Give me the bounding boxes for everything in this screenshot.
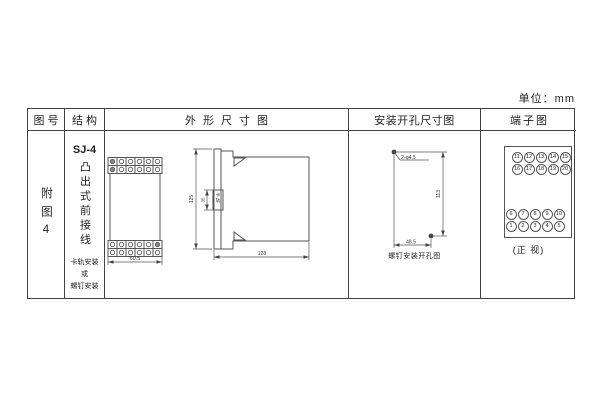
mounting-cell: 2-φ4.5 113 48.5 螺钉安装开孔图 [349,131,481,298]
terminal-row: 1112131415 [512,152,571,163]
terminal-2: 2 [518,221,529,232]
terminal-10: 10 [554,209,565,220]
terminal-14: 14 [548,152,559,163]
terminal-row: 1617181920 [512,164,571,175]
terminal-7: 7 [518,209,529,220]
depth-dim-label: 128 [258,251,267,257]
terminal-15: 15 [560,152,571,163]
terminal-group-bottom: 67891012345 [502,209,568,232]
terminal-1: 1 [506,221,517,232]
drawing-sheet: 单位：mm 图号 结构 外形尺寸图 安装开孔尺寸图 端子图 附图4 SJ-4 凸… [0,0,600,400]
terminal-11: 11 [512,152,523,163]
side-view-drawing: 125 35 卡轨 128 [187,147,317,265]
fig-no-label: 附图4 [38,187,54,243]
model-label: SJ-4 [73,144,96,156]
spec-table: 图号 结构 外形尺寸图 安装开孔尺寸图 端子图 附图4 SJ-4 凸出式前接线 … [27,108,575,299]
header-terminal: 端子图 [481,109,576,131]
terminal-12: 12 [524,152,535,163]
header-structure: 结构 [65,109,105,131]
terminal-20: 20 [560,164,571,175]
terminal-3: 3 [530,221,541,232]
outline-cell: 60.5 [105,131,349,298]
terminal-17: 17 [524,164,535,175]
vertical-dim-label: 113 [436,190,442,198]
mounting-hole-drawing: 2-φ4.5 113 48.5 [363,145,463,260]
terminal-8: 8 [530,209,541,220]
header-outline: 外形尺寸图 [105,109,349,131]
rail-label: 卡轨 [216,192,221,205]
side-height-dim-label: 125 [189,195,195,204]
mounting-hole-bottom [429,234,434,239]
terminal-16: 16 [512,164,523,175]
holes-count-label: 2-φ4.5 [401,155,416,161]
terminal-cell: 11121314151617181920 67891012345 (正 视) [481,131,576,298]
horizontal-dim-label: 48.5 [406,239,416,245]
terminal-19: 19 [548,164,559,175]
terminal-group-top: 11121314151617181920 [508,152,574,175]
terminal-box: 11121314151617181920 67891012345 [504,146,572,238]
front-view-drawing: 60.5 [107,157,163,267]
terminal-6: 6 [506,209,517,220]
terminal-18: 18 [536,164,547,175]
fig-no-cell: 附图4 [28,131,65,298]
header-mounting: 安装开孔尺寸图 [349,109,481,131]
rail-dim-label: 35 [201,197,206,203]
terminal-row: 678910 [506,209,565,220]
mounting-note: 卡轨安装 或 螺钉安装 [71,257,99,293]
terminal-9: 9 [542,209,553,220]
terminal-5: 5 [554,221,565,232]
header-fig-no: 图号 [28,109,65,131]
front-width-dim-label: 60.5 [130,256,141,262]
structure-type-label: 凸出式前接线 [77,161,93,248]
terminal-4: 4 [542,221,553,232]
terminal-row: 12345 [506,221,565,232]
structure-cell: SJ-4 凸出式前接线 卡轨安装 或 螺钉安装 [65,131,105,298]
terminal-caption: (正 视) [481,243,576,256]
terminal-13: 13 [536,152,547,163]
unit-label: 单位：mm [519,90,575,106]
mounting-caption: 螺钉安装开孔图 [349,251,480,261]
